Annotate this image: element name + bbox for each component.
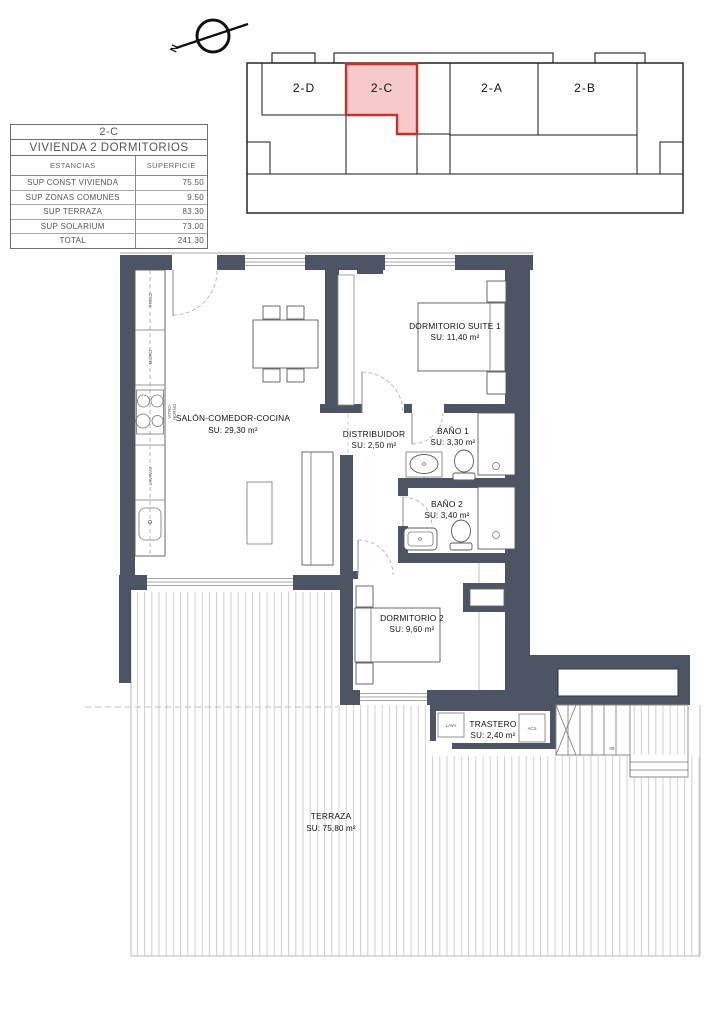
toilet-icon — [452, 520, 471, 542]
suite-wardrobe — [338, 275, 354, 405]
table-row: SUP CONST VIVIENDA 75.50 — [11, 176, 207, 191]
dorm2-door-arc — [358, 540, 393, 575]
stair-step-label: 08 — [610, 746, 615, 751]
col-estancias: ESTANCIAS — [11, 156, 135, 176]
room-label-salon: SALÓN-COMEDOR-COCINA — [176, 413, 290, 423]
fridge-label: FRIGO — [148, 292, 153, 306]
kitchen-counter: FRIGO MICRO VITRO HORNO LAVAVAJ — [135, 270, 177, 556]
suite-door-arc — [362, 372, 403, 413]
svg-text:SU: 3,30 m²: SU: 3,30 m² — [431, 438, 476, 447]
svg-text:SU: 29,30 m²: SU: 29,30 m² — [208, 426, 258, 435]
dishwasher-label: LAVAVAJ — [148, 467, 153, 485]
room-label-dormitorio-2: DORMITORIO 2 — [380, 613, 444, 623]
entrance-door-arc — [173, 271, 217, 315]
key-plan-unit-2a: 2-A — [481, 81, 503, 95]
surface-table: 2-C VIVIENDA 2 DORMITORIOS ESTANCIAS SUP… — [10, 124, 208, 249]
svg-text:SU: 9,60 m²: SU: 9,60 m² — [390, 625, 435, 634]
dorm2-closet — [470, 589, 504, 606]
svg-text:SU: 2,40 m²: SU: 2,40 m² — [471, 731, 516, 740]
key-plan-unit-2c: 2-C — [371, 81, 393, 95]
table-row: SUP TERRAZA 83.30 — [11, 205, 207, 220]
coffee-table — [247, 482, 272, 544]
table-row: SUP SOLARIUM 73.00 — [11, 219, 207, 234]
key-plan-unit-2d: 2-D — [293, 81, 315, 95]
bathroom2-fixtures — [404, 520, 472, 550]
micro-label: MICRO — [148, 349, 153, 364]
north-compass-icon: N — [169, 20, 248, 54]
room-label-trastero: TRASTERO — [469, 719, 516, 729]
table-row: SUP ZONAS COMUNES 9.50 — [11, 190, 207, 205]
table-row: TOTAL 241.30 — [11, 234, 207, 248]
table-header-row: ESTANCIAS SUPERFICIE — [11, 156, 207, 176]
key-plan: 2-D 2-C 2-A 2-B — [247, 53, 683, 213]
key-plan-unit-2b: 2-B — [574, 81, 596, 95]
bathroom1-fixtures — [406, 450, 475, 480]
washer-label: LAVA — [446, 723, 457, 728]
room-label-terraza: TERRAZA — [311, 811, 352, 821]
room-label-bano-1: BAÑO 1 — [437, 426, 469, 436]
surface-table-unit: 2-C — [11, 125, 207, 140]
svg-text:SU: 11,40 m²: SU: 11,40 m² — [431, 333, 480, 342]
dining-set — [253, 306, 318, 382]
water-heater-label: ACS — [527, 726, 536, 731]
dorm2-bed — [355, 586, 440, 684]
surface-table-title: VIVIENDA 2 DORMITORIOS — [11, 140, 207, 156]
svg-text:SU: 2,50 m²: SU: 2,50 m² — [352, 441, 397, 450]
room-label-bano-2: BAÑO 2 — [431, 499, 463, 509]
room-label-distribuidor: DISTRIBUIDOR — [343, 429, 405, 439]
sofa — [302, 452, 333, 565]
col-superficie: SUPERFICIE — [135, 156, 207, 176]
sink-icon — [404, 528, 437, 550]
svg-text:SU: 75,80 m²: SU: 75,80 m² — [306, 824, 356, 833]
svg-text:SU: 3,40 m²: SU: 3,40 m² — [425, 511, 470, 520]
sink-icon — [410, 455, 438, 474]
unit-2c-highlight — [346, 64, 417, 134]
toilet-icon — [455, 450, 474, 472]
planter — [558, 669, 678, 696]
compass-north-label: N — [169, 43, 182, 54]
room-label-dormitorio-suite-1: DORMITORIO SUITE 1 — [409, 321, 501, 331]
